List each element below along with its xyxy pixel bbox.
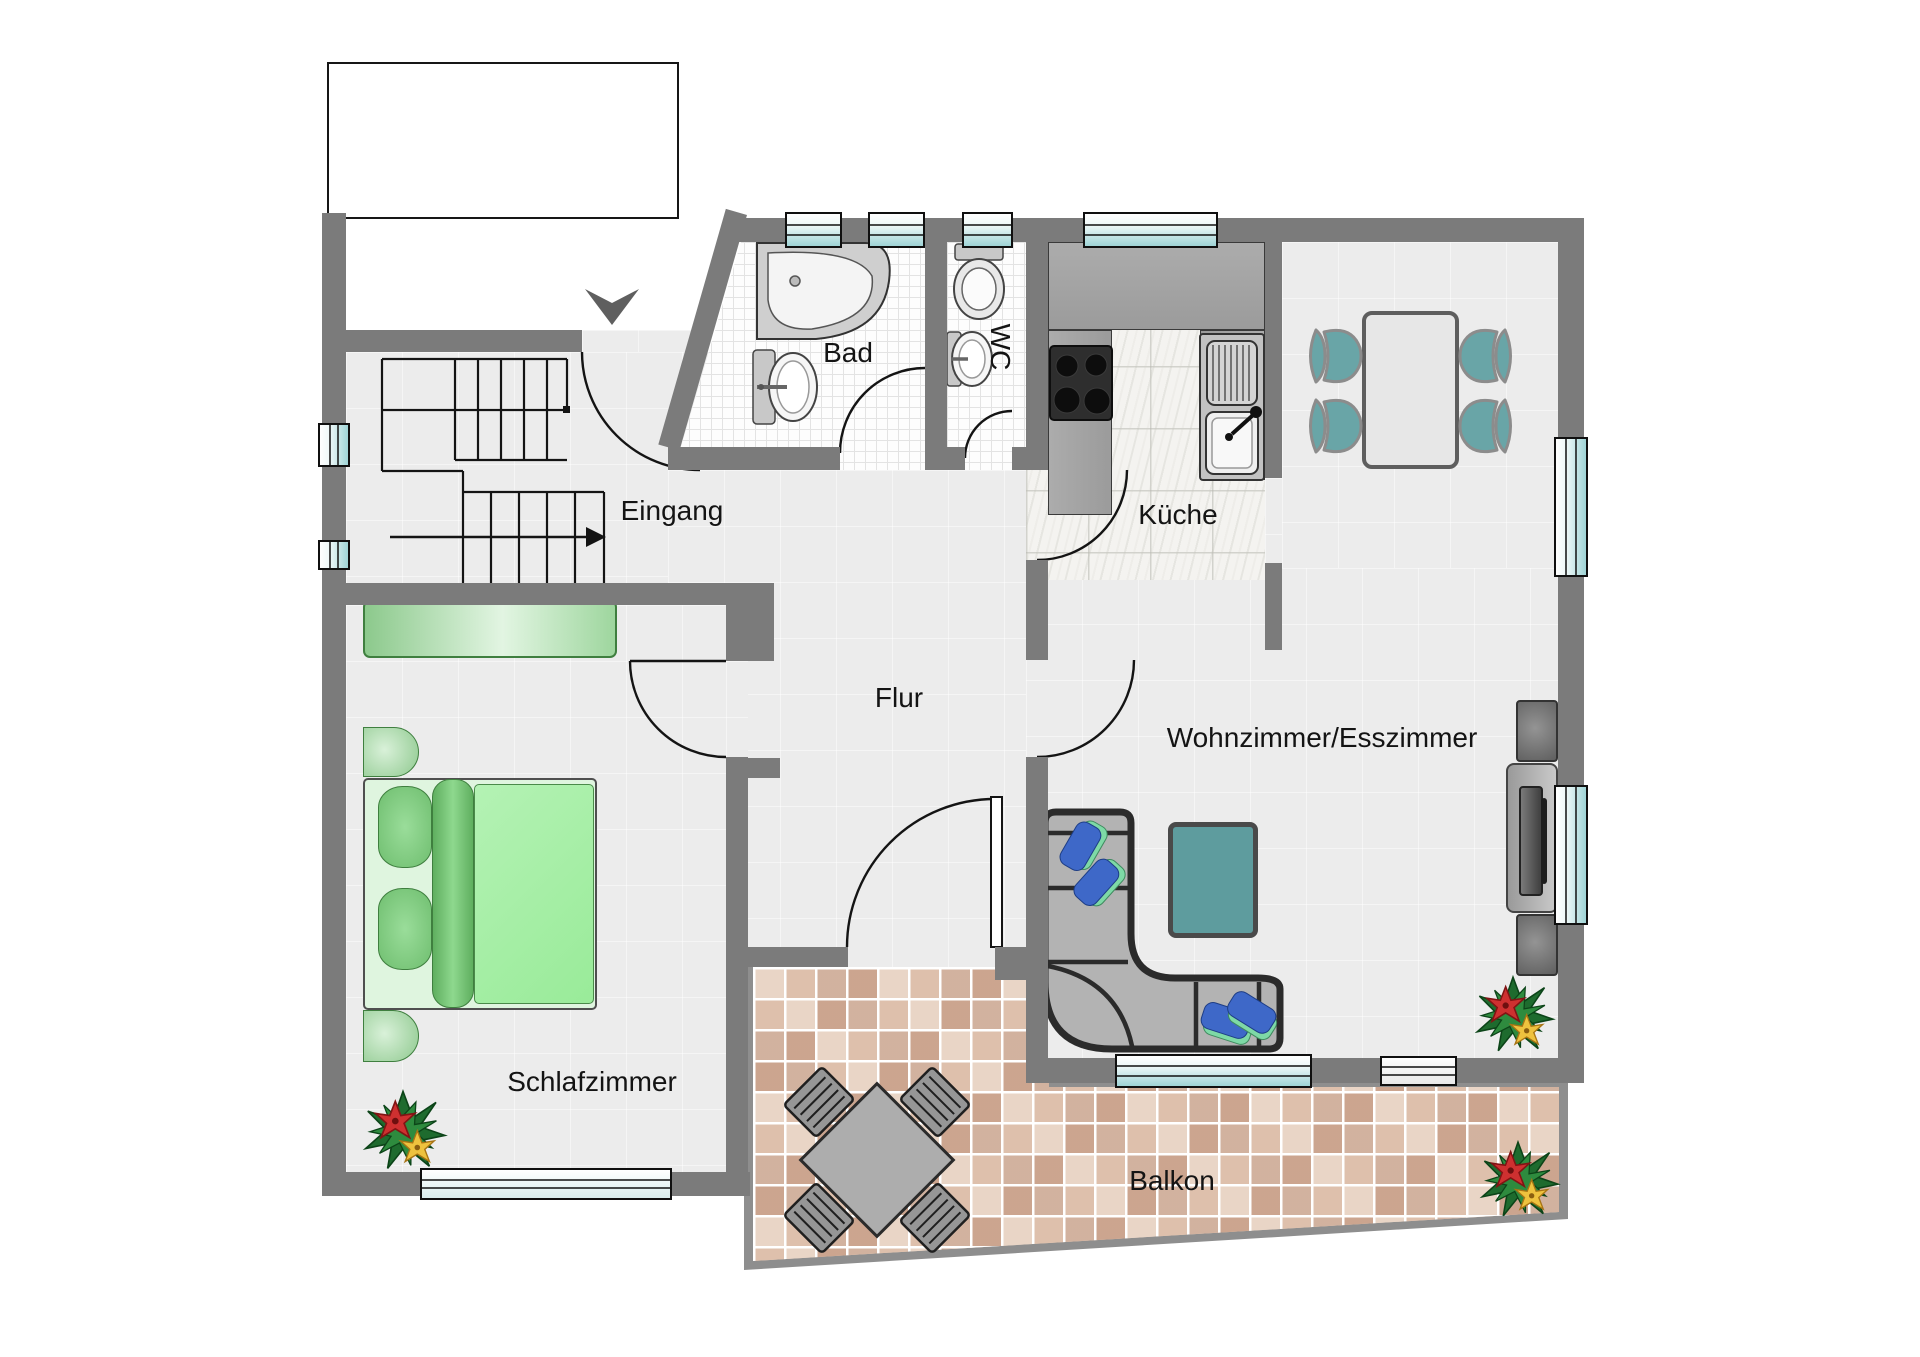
kitchen-sink [1200,334,1264,480]
wall-bedroom-top [346,583,750,605]
wall-bedroom-pillar [726,583,774,661]
sofa [1045,812,1283,1049]
wall-wc-kitchen-divider [1026,242,1048,470]
wall-flur-top-a [668,447,840,470]
wall-eingang-top [346,330,582,352]
label-wc: WC [984,324,1016,371]
stove [1050,346,1112,420]
label-flur: Flur [875,682,923,714]
plant-bedroom [363,1090,446,1172]
wall-kitchen-dining-b [1265,563,1282,650]
toilet [954,244,1004,319]
balcony-door-swing [847,799,995,947]
wall-kitchen-dining-a [1265,242,1282,478]
label-balkon: Balkon [1129,1165,1215,1197]
wall-balcony-pillar [995,947,1048,980]
bathtub [757,243,890,339]
window-kitchen [1083,212,1218,248]
window-bedroom [420,1168,672,1200]
wall-bedroom-flur [726,757,748,1196]
wall-right [1558,242,1584,1083]
window-bad-2 [868,212,925,248]
wall-bad-wc-divider [925,242,947,470]
bad-washbasin [753,350,817,424]
window-left-1 [318,423,350,467]
stairs [382,359,606,583]
plant-livingroom [1475,976,1554,1054]
symbol-overlay [0,0,1920,1357]
dining-chairs [1311,330,1511,452]
bad-door-swing [840,368,925,453]
kitchen-door-swing [1037,470,1127,560]
window-sofa [1115,1054,1312,1088]
balcony-set [729,1012,1026,1309]
entry-arrow [585,289,639,325]
window-dining [1554,437,1588,577]
wall-flur-livingroom [1026,757,1048,1083]
label-schlafzimmer: Schlafzimmer [507,1066,677,1098]
window-left-2 [318,540,350,570]
wc-door-swing [965,411,1012,458]
wall-flur-bottom [748,947,848,967]
floor-plan: Eingang Bad WC Küche Flur Wohnzimmer/Ess… [0,0,1920,1357]
livingroom-door-swing [1037,660,1134,757]
label-kueche: Küche [1138,499,1217,531]
bedroom-door-swing [630,661,726,757]
window-wc [962,212,1013,248]
balcony-door-leaf [991,797,1002,947]
label-bad: Bad [823,337,873,369]
window-livingroom-small [1380,1056,1457,1086]
wall-left [322,213,346,1196]
wall-flur-stub [748,758,780,778]
label-eingang: Eingang [621,495,724,527]
label-wohnzimmer: Wohnzimmer/Esszimmer [1167,722,1478,754]
window-tv [1554,785,1588,925]
wall-flur-kitchen [1026,560,1048,660]
plant-balcony [1480,1141,1559,1219]
window-bad-1 [785,212,842,248]
